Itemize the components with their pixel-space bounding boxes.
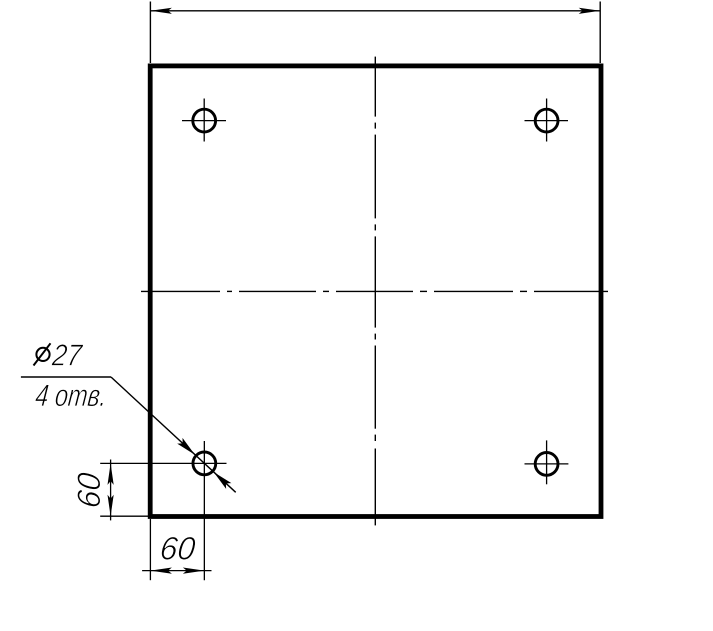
svg-text:60: 60: [158, 531, 197, 567]
svg-text:4 отв.: 4 отв.: [34, 378, 109, 413]
svg-text:27: 27: [50, 339, 84, 373]
svg-text:60: 60: [71, 471, 107, 510]
